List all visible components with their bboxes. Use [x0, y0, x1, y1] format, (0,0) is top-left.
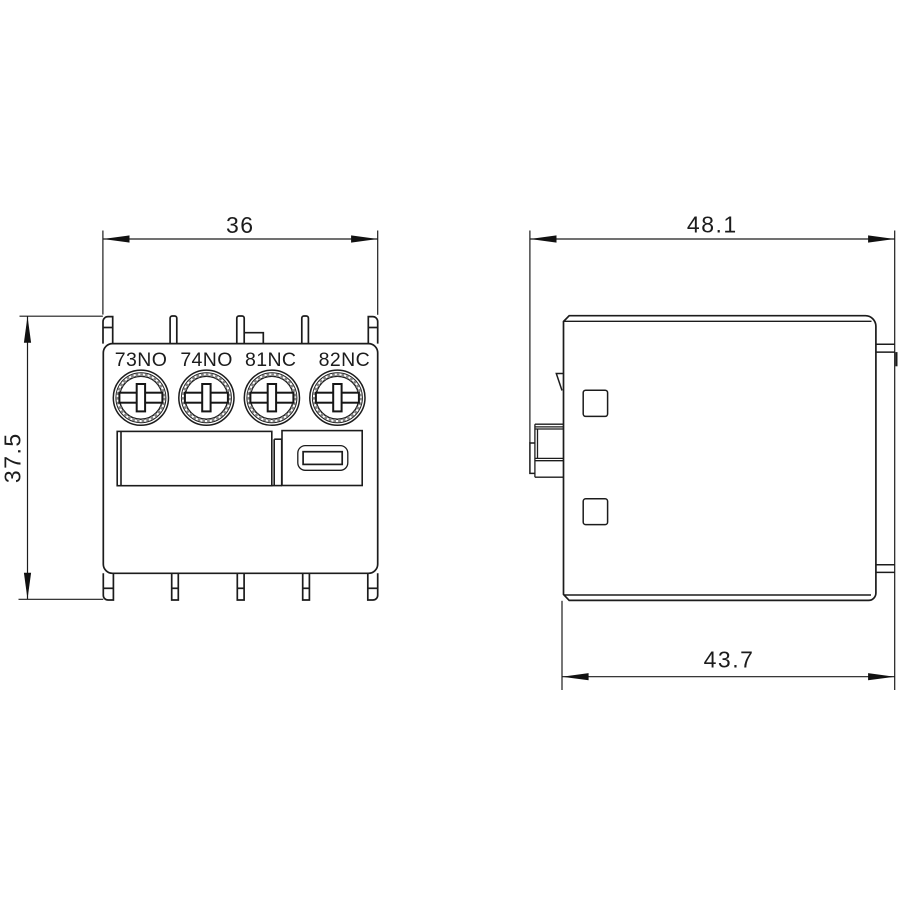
svg-text:81NC: 81NC: [245, 349, 296, 371]
svg-text:48.1: 48.1: [687, 212, 738, 238]
svg-text:73NO: 73NO: [115, 349, 168, 371]
svg-text:36: 36: [226, 212, 255, 238]
svg-text:37.5: 37.5: [0, 432, 26, 483]
svg-text:82NC: 82NC: [319, 349, 370, 371]
svg-text:43.7: 43.7: [704, 647, 755, 673]
svg-text:74NO: 74NO: [180, 349, 233, 371]
